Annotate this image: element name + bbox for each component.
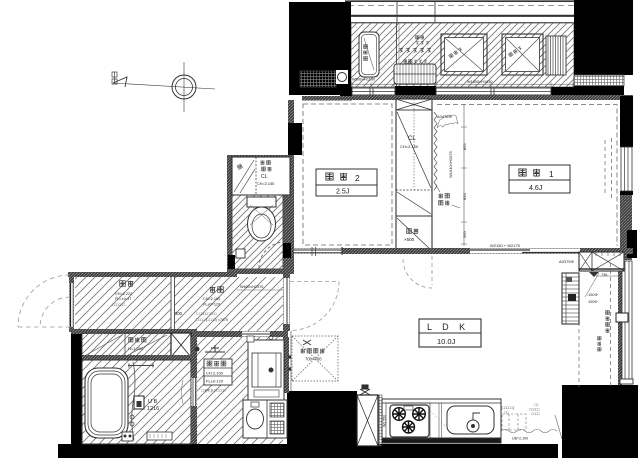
svg-text:10.0J: 10.0J [437,337,456,346]
svg-text:-150Φ: -150Φ [587,293,598,297]
svg-text:□□□□ (□□□□) ×7075: □□□□ (□□□□) ×7075 [196,318,228,322]
svg-text:×500: ×500 [404,237,415,242]
svg-text:W600×H1100: W600×H1100 [352,78,375,82]
svg-text:CL: CL [261,174,268,180]
svg-text:2: 2 [355,173,360,183]
svg-text:CH 2,100: CH 2,100 [206,371,224,376]
svg-text:CH=2,222: CH=2,222 [115,292,132,296]
svg-text:FL=±0-47: FL=±0-47 [115,297,131,301]
svg-text:□□□□: □□□□ [531,412,541,416]
svg-text:L D K: L D K [427,322,469,332]
svg-text:H=1,200: H=1,200 [128,346,144,351]
svg-text:1216: 1216 [147,406,159,412]
svg-text:FL±0-120: FL±0-120 [206,379,224,384]
svg-text:300: 300 [175,311,183,316]
svg-text:□□□□□: □□□□□ [529,408,541,412]
svg-text:CH=2,100: CH=2,100 [203,297,220,301]
svg-text:□□□□□□: □□□□□□ [112,303,126,307]
svg-text:CH=2,155: CH=2,155 [257,182,274,186]
svg-text:A0476Φ: A0476Φ [437,114,452,119]
svg-text:2.5J: 2.5J [336,189,349,196]
svg-text:700×700: 700×700 [305,357,322,362]
svg-text:U B: U B [148,399,158,405]
svg-text:A0375Φ: A0375Φ [559,259,574,264]
svg-text:W600×H2075: W600×H2075 [240,285,263,289]
svg-text:1: 1 [549,169,554,179]
svg-text:UB=2,100: UB=2,100 [512,437,528,441]
svg-text:FL±0=120: FL±0=120 [203,303,220,307]
svg-text:(□□□□□): (□□□□□) [501,406,514,410]
svg-text:833: 833 [462,193,467,200]
svg-text:□□(H□)□□□□□□: □□(H□)□□□□□□ [201,389,226,393]
svg-text:W2,550: W2,550 [383,415,387,427]
svg-text:560: 560 [462,231,467,238]
svg-text:855: 855 [462,143,467,150]
svg-text:W2150 + W2175: W2150 + W2175 [490,243,521,248]
svg-text:W1540×H2075: W1540×H2075 [448,150,453,178]
svg-text:4.6J: 4.6J [529,185,542,192]
svg-text:W1600×H1830: W1600×H1830 [467,80,492,84]
svg-text:□ □□□□□□□□: □ □□□□□□□□ [196,312,217,316]
svg-text:736: 736 [601,273,607,277]
svg-text:CH=2,150: CH=2,150 [400,144,419,149]
svg-text:100Φ: 100Φ [588,300,597,304]
svg-text:CL: CL [408,136,416,142]
